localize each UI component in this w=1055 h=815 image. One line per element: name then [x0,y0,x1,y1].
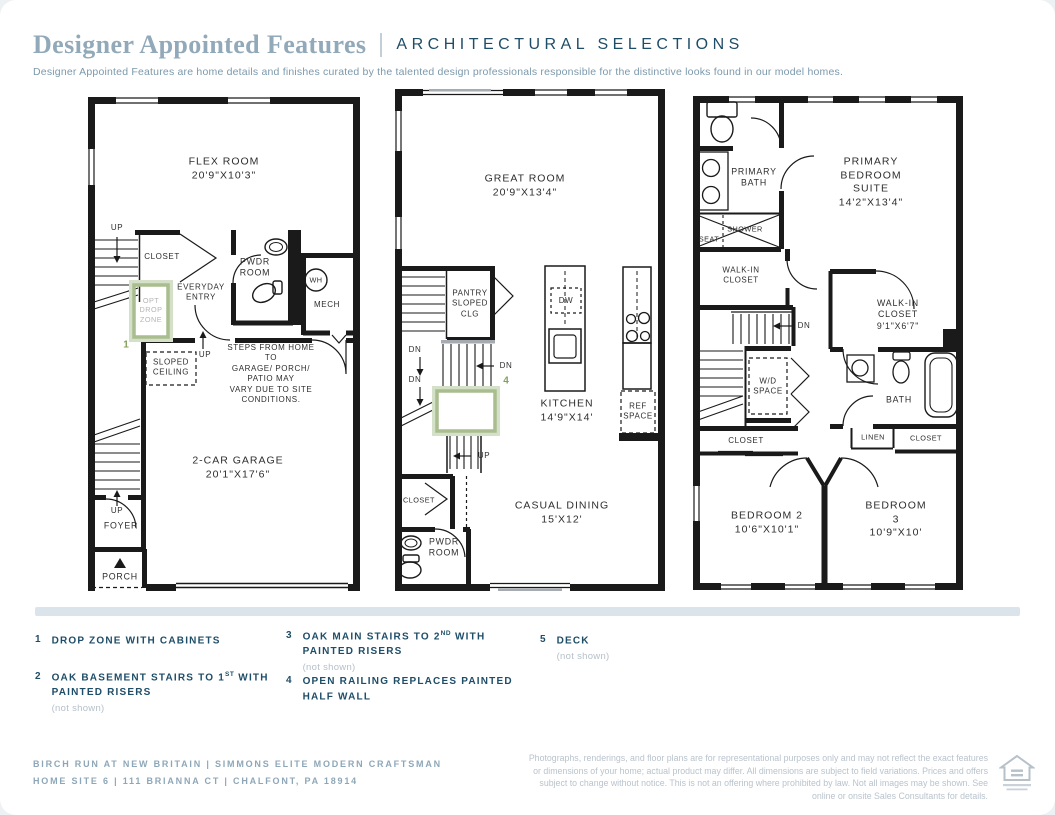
option-marker-4: 4 [503,375,509,388]
room-label-opt-drop-zone: OPT DROP ZONE [140,296,163,324]
stair-railing [441,340,495,344]
label-sloped-ceiling: SLOPED CEILING [153,358,189,379]
stair-label-dn: DN [409,345,422,355]
room-label-pwdr-room: PWDR ROOM [429,537,460,560]
option-marker-1: 1 [123,339,129,352]
footer-disclaimer: Photographs, renderings, and floor plans… [520,752,988,802]
room-label-primary-bedroom: PRIMARY BEDROOM SUITE 14'2"X13'4" [825,156,917,211]
fixtures [695,102,957,417]
label-shower: SHOWER [727,224,763,233]
room-label-bedroom-2: BEDROOM 2 10'6"X10'1" [731,509,803,536]
toilet-icon [711,116,733,142]
label-wd-space: W/D SPACE [753,377,783,398]
room-label-walkin-closet: WALK-IN CLOSET [722,266,759,287]
room-label-porch: PORCH [102,571,138,582]
room-label-primary-bath: PRIMARY BATH [731,167,777,190]
page-subtitle-tag: ARCHITECTURAL SELECTIONS [396,36,743,54]
note-steps-disclaimer: STEPS FROM HOME TO GARAGE/ PORCH/ PATIO … [227,343,316,405]
legend-item-1: 1 DROP ZONE WITH CABINETS [35,633,274,650]
legend-text-sup: ND [441,630,451,637]
legend-text-sup: ST [225,671,234,678]
stair-label-up: UP [111,223,123,233]
room-label-flex-room: FLEX ROOM 20'9"X10'3" [189,155,260,182]
room-label-casual-dining: CASUAL DINING 15'X12' [515,499,609,526]
legend-text-main: OAK BASEMENT STAIRS TO 1 [52,672,225,683]
floorplan-second-floor: GREAT ROOM 20'9"X13'4" PANTRY SLOPED CLG… [395,89,665,591]
footer-community-line: BIRCH RUN AT NEW BRITAIN | SIMMONS ELITE… [33,756,442,773]
legend-item-5: 5 DECK (not shown) [540,633,779,665]
room-label-bath: BATH [886,394,912,405]
garage-door [176,584,348,588]
header: Designer Appointed Features ARCHITECTURA… [33,30,1023,78]
page-title: Designer Appointed Features [33,30,366,60]
legend-note: (not shown) [557,650,779,664]
stair-label-dn: DN [500,361,513,371]
legend-text-main: DROP ZONE WITH CABINETS [52,635,221,646]
wall-segment [619,433,665,441]
legend-item-3: 3 OAK MAIN STAIRS TO 2ND WITH PAINTED RI… [286,629,525,676]
room-label-mech: MECH [314,300,340,310]
room-label-kitchen: KITCHEN 14'9"X14' [540,397,593,424]
footer-community-info: BIRCH RUN AT NEW BRITAIN | SIMMONS ELITE… [33,756,442,790]
legend-number: 5 [540,633,546,665]
room-label-pwdr-room: PWDR ROOM [240,257,271,280]
designer-features-sheet: Designer Appointed Features ARCHITECTURA… [0,0,1055,815]
legend-item-2: 2 OAK BASEMENT STAIRS TO 1ST WITH PAINTE… [35,670,274,717]
legend-text-main: DECK [557,635,590,646]
room-label-everyday-entry: EVERYDAY ENTRY [177,283,225,304]
room-label-closet: CLOSET [728,436,764,446]
room-label-closet: CLOSET [144,252,180,262]
room-label-linen: LINEN [861,432,885,441]
direction-arrows [417,357,495,460]
legend-text: OPEN RAILING REPLACES PAINTED HALF WALL [303,674,525,706]
floorplan-first-floor: FLEX ROOM 20'9"X10'3" UP CLOSET OPT DROP… [88,97,360,591]
stair-label-dn: DN [798,321,811,331]
wall-segment [943,329,960,349]
legend-text: DECK (not shown) [557,633,779,665]
toilet-icon [893,361,909,383]
room-label-closet: CLOSET [403,495,435,504]
equal-housing-opportunity-icon [999,754,1035,799]
footer-address-line: HOME SITE 6 | 111 BRIANNA CT | CHALFONT,… [33,773,442,790]
page-description: Designer Appointed Features are home det… [33,66,1023,78]
legend-number: 4 [286,674,292,706]
room-label-closet: CLOSET [910,433,942,442]
legend-text: DROP ZONE WITH CABINETS [52,633,274,650]
legend-text-main: OAK MAIN STAIRS TO 2 [303,631,441,642]
room-label-foyer: FOYER [104,520,138,531]
legend-item-4: 4 OPEN RAILING REPLACES PAINTED HALF WAL… [286,674,525,706]
room-label-pantry: PANTRY SLOPED CLG [452,288,488,319]
toilet-icon [399,562,421,578]
cooktop-burners-icon [627,313,650,342]
legend-divider [35,607,1020,616]
legend-number: 2 [35,670,41,717]
label-water-heater: WH [309,275,322,284]
floorplan-third-floor: PRIMARY BATH PRIMARY BEDROOM SUITE 14'2"… [693,96,963,590]
room-label-garage: 2-CAR GARAGE 20'1"X17'6" [192,454,283,481]
sink-icon [703,160,720,177]
kitchen-island [545,266,585,391]
legend-text-main: OPEN RAILING REPLACES PAINTED HALF WALL [303,676,513,702]
windows [396,90,627,249]
stair-label-up: UP [478,451,490,461]
stair-label-up: UP [199,350,211,360]
sink-icon [703,187,720,204]
legend-note: (not shown) [52,702,274,716]
stair-label-up: UP [111,506,123,516]
label-seat: SEAT [699,234,719,243]
porch-entry-triangle-icon [114,558,126,568]
title-divider [380,33,382,57]
sink-icon [852,360,868,376]
wall-chase [288,230,301,325]
room-label-great-room: GREAT ROOM 20'9"X13'4" [485,172,566,199]
legend-number: 3 [286,629,292,676]
legend-number: 1 [35,633,41,650]
legend-text: OAK MAIN STAIRS TO 2ND WITH PAINTED RISE… [303,629,525,676]
stairs [92,232,140,489]
fixtures [399,536,421,578]
label-dishwasher: DW [559,296,574,306]
stair-label-dn: DN [409,375,422,385]
toilet-icon [249,280,278,306]
room-label-walkin-closet: WALK-IN CLOSET 9'1"X6'7" [877,298,919,332]
room-label-bedroom-3: BEDROOM 3 10'9"X10' [863,500,930,541]
legend-text: OAK BASEMENT STAIRS TO 1ST WITH PAINTED … [52,670,274,717]
option-4-open-railing-box [435,389,497,433]
label-ref-space: REF SPACE [623,402,653,423]
